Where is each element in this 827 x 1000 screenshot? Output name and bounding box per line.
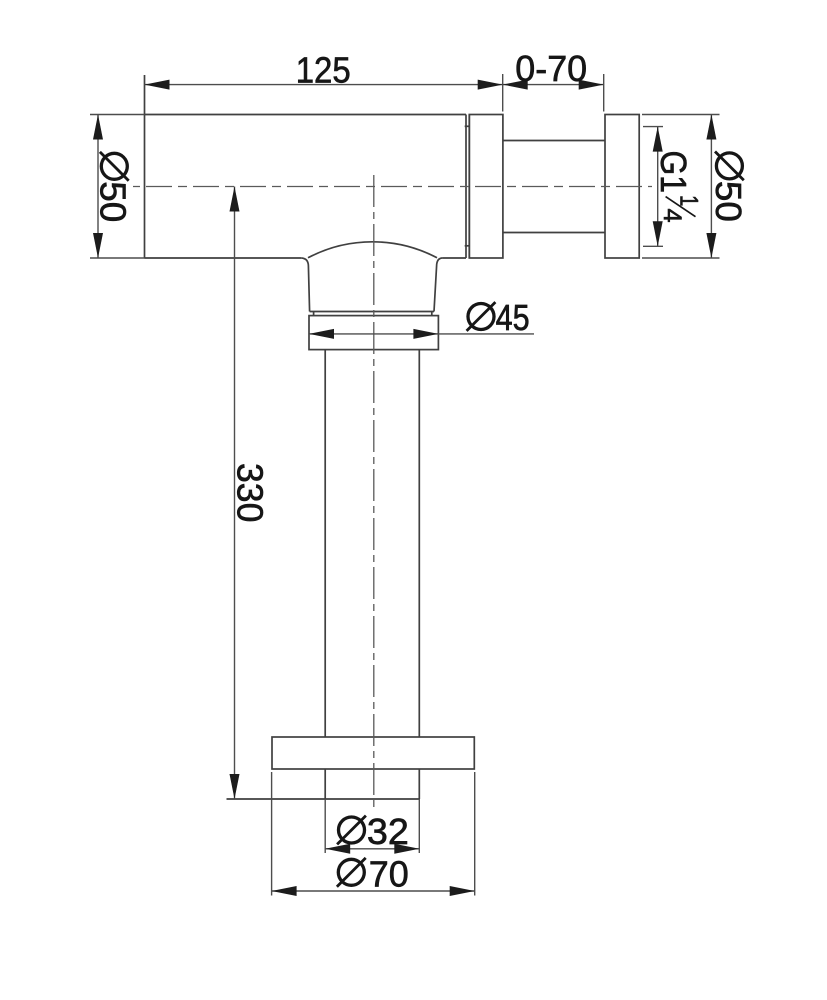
svg-text:50: 50: [708, 181, 749, 222]
svg-text:32: 32: [367, 811, 409, 852]
svg-text:45: 45: [496, 297, 530, 338]
svg-text:50: 50: [93, 181, 134, 222]
svg-text:125: 125: [296, 50, 351, 91]
svg-text:4: 4: [658, 209, 686, 223]
svg-text:330: 330: [229, 463, 270, 522]
svg-text:0-70: 0-70: [515, 48, 587, 89]
svg-text:70: 70: [369, 853, 409, 894]
svg-text:G1: G1: [653, 151, 694, 194]
